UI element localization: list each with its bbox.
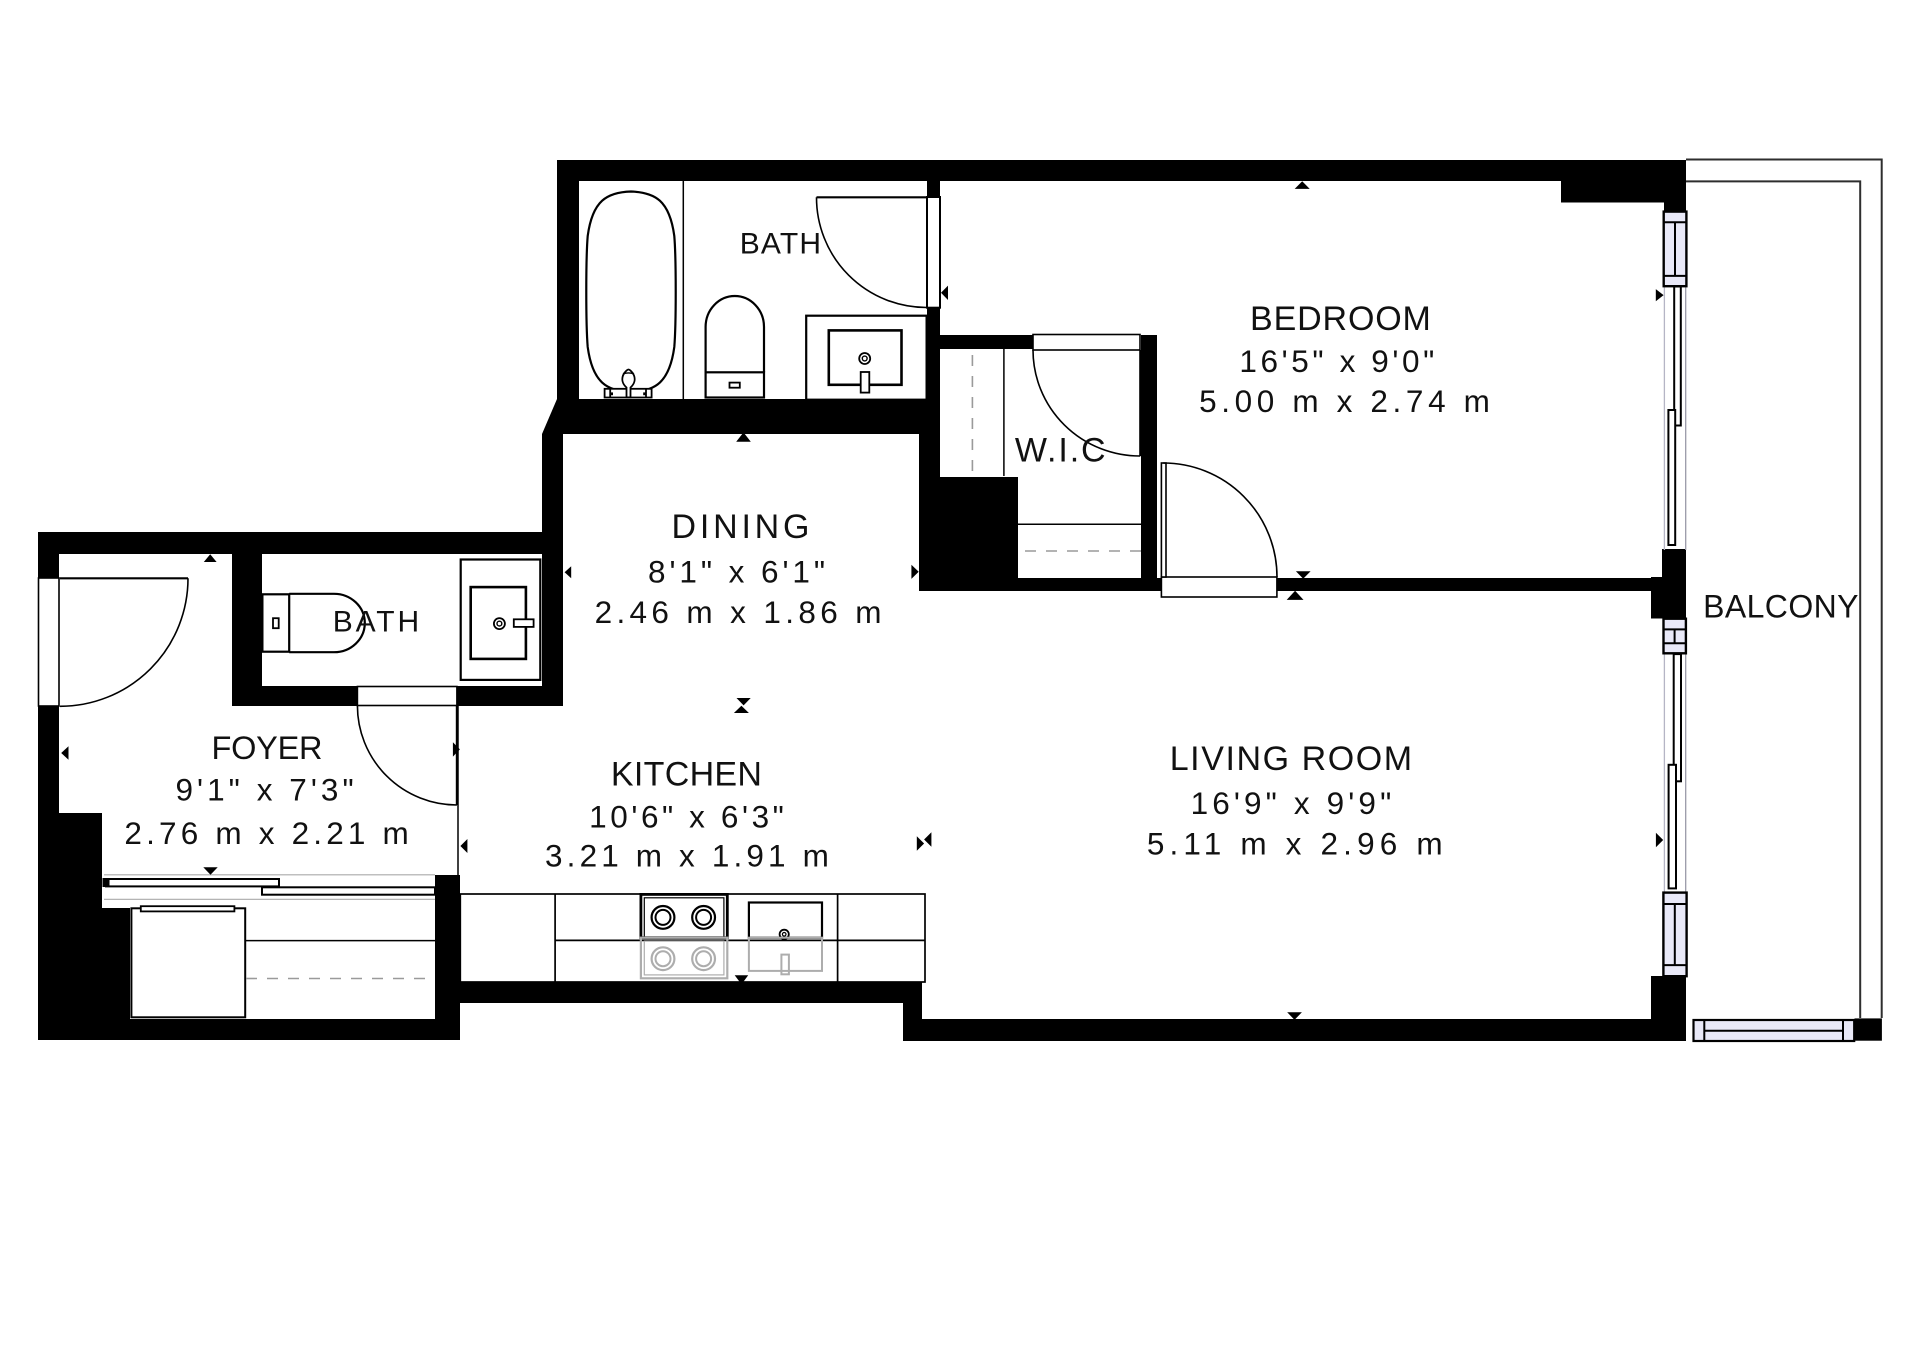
svg-text:BALCONY: BALCONY bbox=[1703, 589, 1859, 625]
svg-text:9'1" x 7'3": 9'1" x 7'3" bbox=[175, 772, 357, 808]
svg-text:3.21 m x 1.91 m: 3.21 m x 1.91 m bbox=[545, 838, 833, 874]
svg-text:FOYER: FOYER bbox=[212, 730, 323, 766]
svg-text:BEDROOM: BEDROOM bbox=[1250, 300, 1432, 338]
svg-text:2.76 m x 2.21 m: 2.76 m x 2.21 m bbox=[124, 815, 413, 851]
svg-text:5.00 m x 2.74 m: 5.00 m x 2.74 m bbox=[1199, 383, 1494, 419]
svg-text:W.I.C: W.I.C bbox=[1015, 431, 1108, 469]
svg-text:KITCHEN: KITCHEN bbox=[611, 755, 762, 793]
svg-text:BATH: BATH bbox=[740, 228, 823, 261]
svg-text:16'5" x 9'0": 16'5" x 9'0" bbox=[1239, 343, 1438, 379]
svg-text:BATH: BATH bbox=[333, 606, 422, 639]
svg-text:LIVING ROOM: LIVING ROOM bbox=[1170, 740, 1414, 778]
svg-text:16'9" x 9'9": 16'9" x 9'9" bbox=[1191, 785, 1396, 821]
svg-text:DINING: DINING bbox=[671, 508, 813, 546]
svg-text:8'1" x 6'1": 8'1" x 6'1" bbox=[648, 553, 829, 589]
svg-text:10'6" x 6'3": 10'6" x 6'3" bbox=[589, 799, 787, 835]
svg-text:2.46 m x 1.86 m: 2.46 m x 1.86 m bbox=[595, 594, 886, 630]
svg-text:5.11 m x 2.96 m: 5.11 m x 2.96 m bbox=[1147, 825, 1448, 861]
